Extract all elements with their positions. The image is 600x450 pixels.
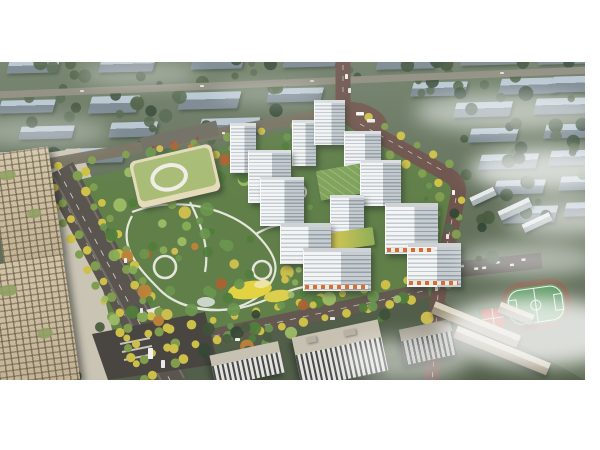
street-tree	[106, 215, 113, 222]
tree-canopy	[252, 310, 261, 319]
tree-canopy	[70, 70, 79, 79]
residential-tower	[292, 120, 316, 166]
tree-canopy	[368, 302, 378, 312]
mist-cloud	[215, 82, 325, 104]
tree-canopy	[185, 304, 198, 317]
tree-canopy	[393, 295, 401, 303]
vehicle	[80, 90, 84, 92]
tree-canopy	[449, 208, 459, 218]
tree-canopy	[179, 206, 191, 218]
aerial-render	[0, 62, 585, 380]
tree-canopy	[296, 267, 302, 273]
street-tree	[90, 183, 98, 191]
tree-canopy	[100, 223, 108, 231]
street-tree	[91, 261, 101, 271]
street-tree	[213, 336, 222, 345]
roof-garden	[0, 169, 16, 181]
vehicle	[356, 112, 364, 116]
street-tree	[445, 160, 454, 169]
tree-canopy	[482, 211, 495, 224]
tree-canopy	[310, 301, 317, 308]
street-tree	[67, 215, 75, 223]
tree-canopy	[139, 249, 149, 259]
street-tree	[169, 344, 178, 353]
tree-canopy	[46, 62, 58, 73]
tree-canopy	[95, 322, 105, 332]
tree-canopy	[109, 314, 120, 325]
vehicle	[161, 360, 165, 368]
roof-garden	[27, 208, 42, 219]
tree-canopy	[146, 296, 153, 303]
street-tree	[429, 150, 437, 158]
tree-canopy	[281, 276, 289, 284]
street-tree	[81, 187, 91, 197]
tree-canopy	[196, 217, 203, 224]
tree-canopy	[130, 96, 144, 110]
street-tree	[83, 246, 92, 255]
tree-canopy	[148, 242, 157, 251]
tree-canopy	[241, 323, 251, 333]
vehicle	[446, 234, 449, 239]
tree-canopy	[444, 223, 453, 232]
street-tree	[339, 290, 346, 297]
tree-canopy	[113, 198, 126, 211]
vehicle	[222, 132, 225, 134]
street-tree	[258, 128, 265, 135]
tree-canopy	[269, 104, 282, 117]
vehicle	[367, 119, 375, 123]
street-tree	[132, 340, 140, 348]
tree-canopy	[108, 250, 120, 262]
roof-box	[343, 328, 356, 336]
street-tree	[88, 156, 96, 164]
tree-canopy	[202, 247, 213, 258]
tree-canopy	[200, 203, 214, 217]
vehicle	[235, 338, 240, 341]
street-tree	[187, 320, 197, 330]
vehicle	[310, 80, 314, 82]
retail-awnings	[409, 281, 458, 285]
tree-canopy	[379, 309, 390, 320]
street-tree	[210, 317, 217, 324]
street-tree	[418, 169, 427, 178]
tree-canopy	[460, 135, 468, 143]
tree-canopy	[401, 62, 414, 72]
tree-canopy	[102, 296, 109, 303]
tree-canopy	[263, 332, 273, 342]
tree-canopy	[203, 286, 213, 296]
street-tree	[342, 309, 351, 318]
tree-canopy	[477, 223, 486, 232]
tree-canopy	[298, 300, 308, 310]
street-tree	[140, 355, 149, 364]
vehicle	[330, 317, 335, 320]
tree-canopy	[191, 243, 198, 250]
street-tree	[83, 266, 91, 274]
street-tree	[397, 132, 406, 141]
street-tree	[59, 199, 67, 207]
street-tree	[100, 278, 108, 286]
tree-canopy	[230, 62, 242, 65]
tree-canopy	[200, 228, 211, 239]
tree-canopy	[277, 301, 285, 309]
street-tree	[90, 203, 97, 210]
tree-canopy	[231, 73, 238, 80]
street-tree	[123, 324, 132, 333]
tree-canopy	[160, 246, 168, 254]
tree-canopy	[105, 229, 118, 242]
street-tree	[126, 353, 135, 362]
street-tree	[155, 327, 164, 336]
street-tree	[73, 171, 83, 181]
tree-canopy	[264, 62, 277, 70]
street-tree	[75, 230, 84, 239]
street-tree	[458, 197, 465, 204]
tree-canopy	[125, 306, 138, 319]
vehicle	[345, 74, 348, 79]
tree-canopy	[292, 279, 298, 285]
tree-canopy	[248, 62, 255, 67]
tree-canopy	[176, 255, 182, 261]
tree-canopy	[245, 270, 254, 279]
tree-canopy	[159, 109, 173, 123]
mist-cloud	[340, 337, 470, 380]
street-tree	[321, 314, 328, 321]
tree-canopy	[367, 291, 379, 303]
tree-canopy	[165, 286, 175, 296]
tree-canopy	[121, 250, 133, 262]
street-tree	[122, 151, 130, 159]
tree-canopy	[563, 62, 574, 68]
street-tree	[59, 219, 67, 227]
tree-canopy	[116, 110, 124, 118]
tree-canopy	[71, 103, 81, 113]
tree-canopy	[182, 222, 191, 231]
street-tree	[278, 323, 286, 331]
tree-canopy	[359, 303, 368, 312]
street-tree	[434, 179, 442, 187]
tree-canopy	[198, 343, 211, 356]
street-tree	[435, 192, 445, 202]
street-tree	[385, 150, 394, 159]
vehicle	[170, 142, 173, 144]
tree-canopy	[145, 105, 156, 116]
tree-canopy	[202, 323, 215, 336]
street-tree	[414, 142, 421, 149]
street-tree	[139, 277, 147, 285]
tree-canopy	[223, 293, 234, 304]
tree-canopy	[128, 199, 137, 208]
street-tree	[144, 330, 152, 338]
vehicle	[140, 308, 143, 313]
tree-canopy	[322, 292, 336, 306]
street-tree	[123, 335, 130, 342]
tree-canopy	[517, 62, 529, 69]
vehicle	[452, 190, 455, 195]
street-tree	[148, 371, 157, 380]
street-tree	[66, 234, 75, 243]
street-tree	[381, 123, 388, 130]
street-tree	[385, 300, 394, 309]
street-tree	[381, 280, 391, 290]
tree-canopy	[550, 130, 562, 142]
roof-garden	[37, 327, 53, 339]
tree-canopy	[418, 89, 426, 97]
tree-canopy	[247, 235, 255, 243]
tree-canopy	[229, 259, 239, 269]
tree-canopy	[129, 266, 138, 275]
vehicle	[148, 348, 153, 359]
tree-canopy	[424, 196, 429, 201]
tree-canopy	[65, 62, 76, 69]
tree-canopy	[172, 91, 181, 100]
street-tree	[156, 145, 163, 152]
street-tree	[192, 340, 200, 348]
street-tree	[130, 281, 139, 290]
vehicle	[500, 72, 504, 74]
street-tree	[91, 282, 99, 290]
page	[0, 0, 600, 450]
street-tree	[98, 199, 106, 207]
residential-tower	[260, 177, 304, 226]
street-tree	[115, 328, 124, 337]
street-tree	[124, 344, 132, 352]
vehicle	[348, 88, 351, 93]
street-tree	[107, 292, 117, 302]
tree-canopy	[227, 303, 240, 316]
street-tree	[165, 325, 174, 334]
street-tree	[54, 162, 62, 170]
tree-canopy	[216, 278, 227, 289]
retail-awnings	[305, 285, 368, 289]
tree-canopy	[283, 133, 291, 141]
vehicle	[152, 146, 155, 148]
tree-canopy	[222, 334, 231, 343]
tree-canopy	[149, 125, 156, 132]
street-tree	[402, 160, 411, 169]
street-tree	[133, 360, 140, 367]
tree-canopy	[288, 291, 295, 298]
tree-canopy	[222, 240, 234, 252]
vehicle	[196, 137, 199, 139]
roof-box	[306, 336, 317, 344]
tree-canopy	[480, 80, 489, 89]
tree-canopy	[265, 324, 273, 332]
street-tree	[452, 230, 461, 239]
street-tree	[171, 358, 181, 368]
tree-canopy	[307, 204, 313, 210]
tree-canopy	[171, 248, 178, 255]
tree-canopy	[426, 183, 432, 189]
mist-cloud	[80, 62, 200, 87]
residential-tower	[360, 160, 401, 206]
vehicle	[124, 258, 127, 263]
retail-awnings	[387, 248, 435, 252]
tree-canopy	[158, 219, 167, 228]
roof-garden	[0, 284, 18, 297]
street-tree	[75, 250, 83, 258]
tree-canopy	[234, 279, 245, 290]
vehicle	[200, 85, 204, 87]
tree-canopy	[177, 237, 186, 246]
tree-canopy	[153, 315, 164, 326]
street-tree	[299, 318, 308, 327]
tree-canopy	[500, 189, 513, 202]
residential-tower	[314, 100, 345, 145]
tree-canopy	[250, 69, 257, 76]
tree-canopy	[33, 62, 47, 70]
